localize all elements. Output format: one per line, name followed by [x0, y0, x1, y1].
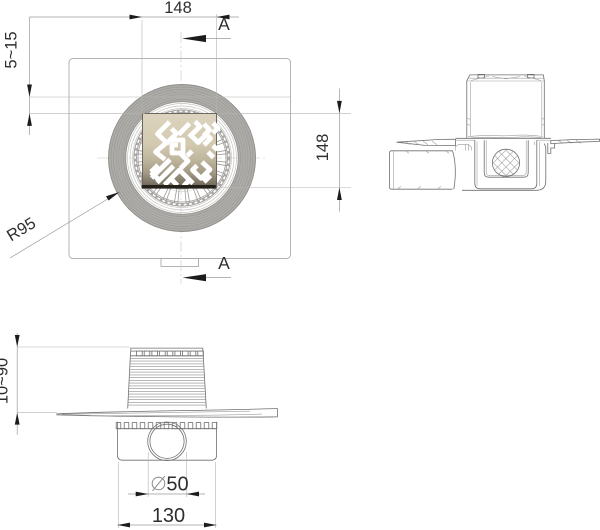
svg-text:50: 50 [166, 474, 188, 496]
svg-text:130: 130 [152, 505, 185, 527]
svg-text:148: 148 [164, 0, 192, 17]
svg-text:5~15: 5~15 [3, 31, 21, 68]
svg-text:A: A [218, 14, 230, 34]
svg-text:A: A [218, 253, 230, 273]
svg-text:10~90: 10~90 [0, 358, 12, 404]
svg-text:148: 148 [314, 134, 332, 162]
